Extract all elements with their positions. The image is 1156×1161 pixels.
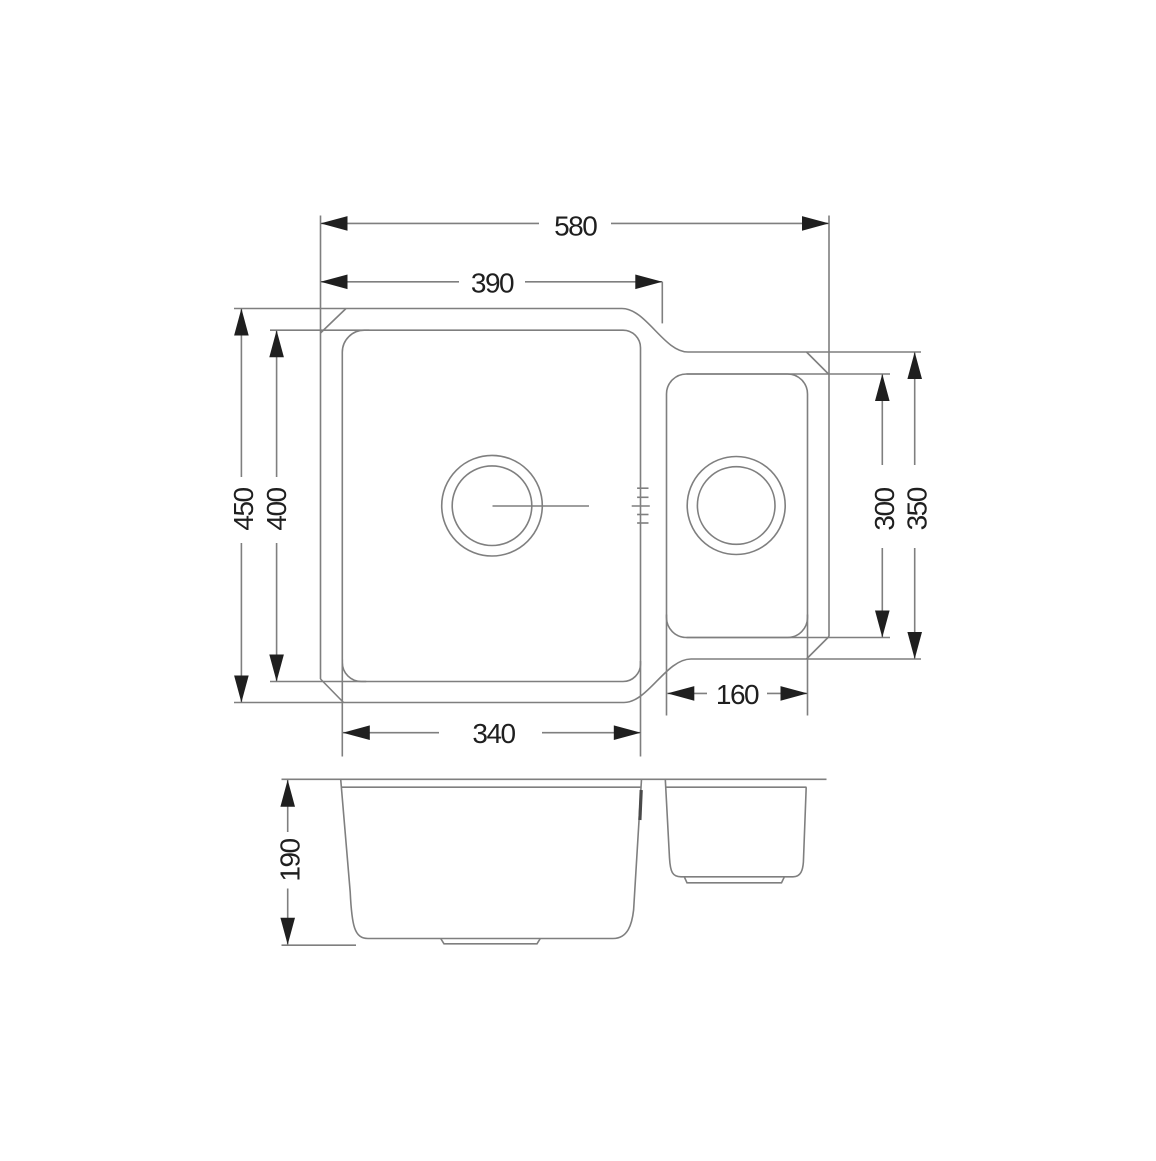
svg-text:300: 300 — [869, 487, 900, 530]
svg-text:340: 340 — [472, 718, 515, 749]
svg-text:190: 190 — [275, 838, 306, 881]
svg-text:400: 400 — [261, 487, 292, 530]
svg-text:160: 160 — [716, 679, 759, 710]
svg-text:580: 580 — [554, 210, 597, 241]
svg-text:350: 350 — [902, 487, 933, 530]
svg-text:450: 450 — [228, 487, 259, 530]
svg-text:390: 390 — [471, 267, 514, 298]
